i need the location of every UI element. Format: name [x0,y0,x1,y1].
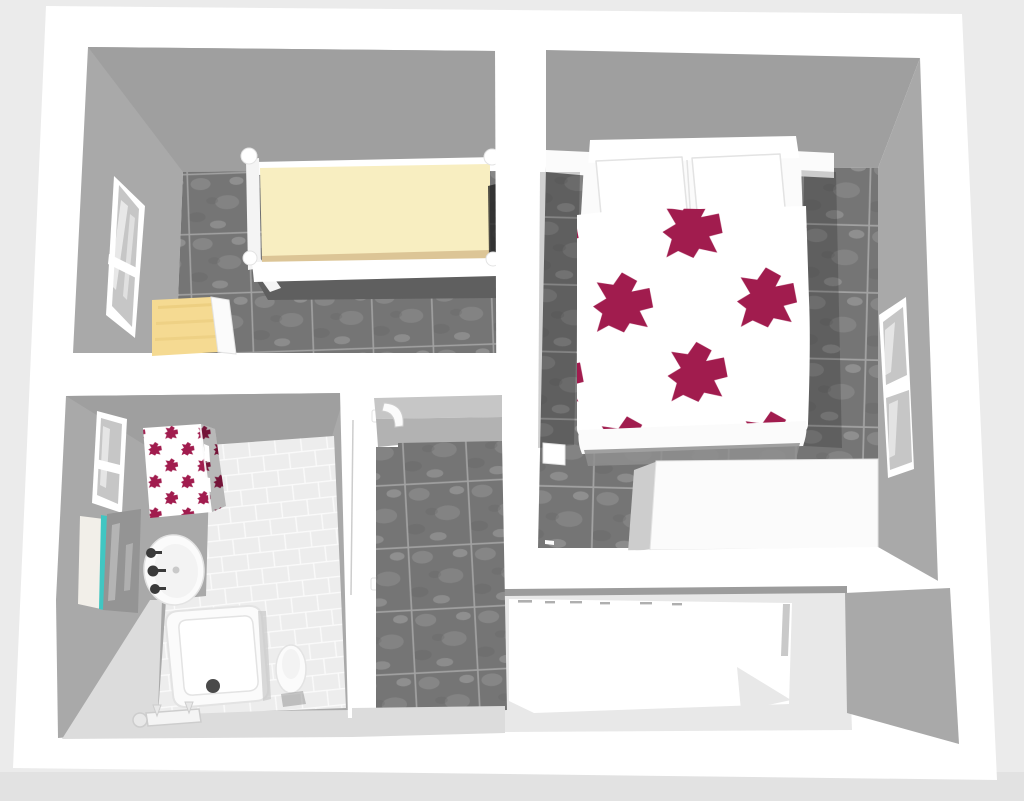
toilet-seat [282,649,300,679]
room-south [503,588,959,744]
single-bed [241,148,500,300]
tap-knob [150,584,160,594]
mirror-panel [78,509,141,613]
tap-knob [148,566,159,577]
room-bathroom [56,393,352,739]
bedside-cabinet [152,297,236,356]
patterned-cabinet [143,424,226,518]
floorplan-3d-viewport [0,0,1024,801]
floorplan-3d-render [0,0,1024,801]
room-bedroom-double [538,50,938,582]
tap-knob [146,548,156,558]
patterned-duvet [577,206,810,440]
wardrobe [628,459,878,552]
shower-tray [166,606,271,707]
bed-side-shadow [538,172,580,448]
bed-post [241,148,257,164]
valve-knob [133,713,147,727]
mattress [260,164,490,258]
room-bedroom-single [73,47,500,356]
basin-drain [173,567,180,574]
floor-plain [352,706,505,737]
bed-post [243,251,257,265]
floor-dark-tiles [376,441,507,716]
shower-drain [206,679,220,693]
double-bed [577,136,810,466]
window-bathroom [92,411,127,513]
wardrobe-top [650,459,878,550]
nightstand [543,443,565,465]
room-hallway [340,385,507,737]
